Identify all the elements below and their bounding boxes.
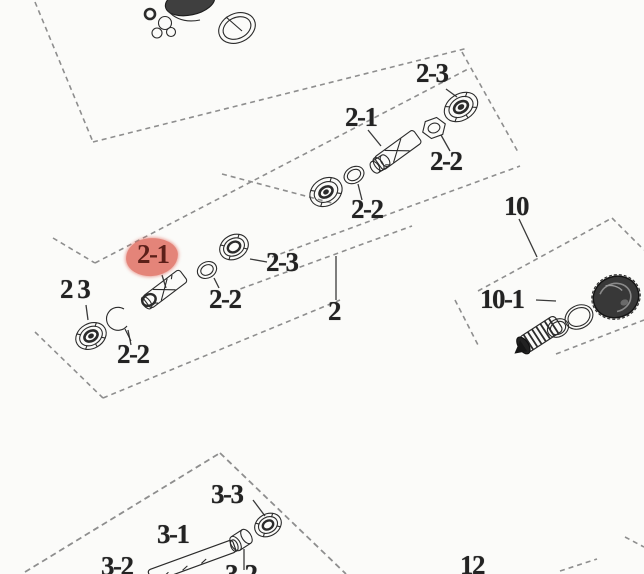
- coiled-spring-cap: [585, 268, 644, 326]
- callout-2-2-left-lower: 2-2: [117, 341, 149, 368]
- ball-bearing-topright: [439, 86, 483, 127]
- boxC-bottom-edge: [556, 320, 644, 354]
- washer-left-outer: [194, 258, 219, 282]
- callout-2-3-left: 2 3: [60, 276, 89, 303]
- leader-2-1-topright: [368, 130, 381, 146]
- leader-3-3: [253, 500, 265, 516]
- boxB-inner-edge-1: [232, 226, 412, 292]
- boxE-edge-hint-1: [560, 559, 597, 571]
- boxE-edge-hint-2: [625, 537, 644, 547]
- washer-inner: [219, 12, 254, 43]
- boxA-bottom-edge: [93, 48, 468, 142]
- callout-10-1: 10-1: [480, 286, 524, 313]
- callout-2-1-topright: 2-1: [345, 104, 377, 131]
- callout-2-3-middle: 2-3: [266, 249, 298, 276]
- washer-mark: [226, 17, 242, 31]
- ball-bearing-left: [71, 317, 111, 355]
- joint-circle-3: [167, 28, 176, 37]
- callout-2-2-left-right: 2-2: [209, 286, 241, 313]
- dashed-assembly-boxes: [25, 2, 644, 574]
- leader-10-1: [536, 300, 556, 301]
- callout-3-2: 3-2: [101, 553, 133, 574]
- boxC-top-edge: [478, 218, 612, 291]
- ball-bearing-bottom: [250, 508, 285, 541]
- leader-2-3-left: [86, 305, 88, 320]
- washer-middle-outer: [341, 163, 367, 187]
- boxD-right-edge: [220, 453, 346, 574]
- callout-2-2-topright: 2-2: [430, 148, 462, 175]
- washer-outer: [214, 7, 261, 49]
- boxB-left-corner: [53, 238, 95, 263]
- callout-3-1: 3-1: [157, 521, 189, 548]
- boxB-right-edge: [462, 52, 518, 152]
- callout-2-2-middle: 2-2: [351, 196, 383, 223]
- snap-ring: [107, 307, 127, 330]
- bushing-middle: [368, 153, 392, 175]
- boxB-inner-edge-2: [272, 166, 520, 257]
- shaft-sleeve-topright: [371, 129, 422, 173]
- callout-12: 12: [460, 552, 484, 574]
- callout-3-2-clipped: 3-2: [225, 561, 257, 574]
- callout-2-1-highlighted[interactable]: 2-1: [137, 241, 169, 268]
- callout-10: 10: [504, 193, 528, 220]
- callout-3-3: 3-3: [211, 481, 243, 508]
- ring-10-large-outer: [561, 300, 597, 334]
- boxC-right-edge: [612, 218, 644, 250]
- boxC-left-edge: [455, 300, 478, 345]
- callout-2: 2: [328, 298, 340, 325]
- leader-lines: [86, 89, 556, 570]
- gear-body: [163, 0, 217, 20]
- joint-circle-2: [152, 28, 162, 38]
- assembly-2-topright-group: [371, 86, 484, 173]
- top-assembly-part: [145, 0, 260, 49]
- boxA-left-edge: [35, 2, 93, 142]
- leader-10: [519, 219, 537, 257]
- callout-2-3-topright: 2-3: [416, 60, 448, 87]
- hex-nut: [420, 115, 449, 140]
- ball-bearing-left-2: [215, 229, 253, 265]
- boxB-top-edge: [95, 68, 470, 263]
- leader-2-3-middle: [250, 259, 267, 262]
- dark-ring: [145, 9, 155, 19]
- parts-diagram-canvas: 2-3 2-1 2-2 2-2 2-3 2 2-1 2 3 2-2 2-2 10…: [0, 0, 644, 574]
- ball-bearing-middle: [304, 172, 347, 213]
- diagram-linework: [0, 0, 644, 574]
